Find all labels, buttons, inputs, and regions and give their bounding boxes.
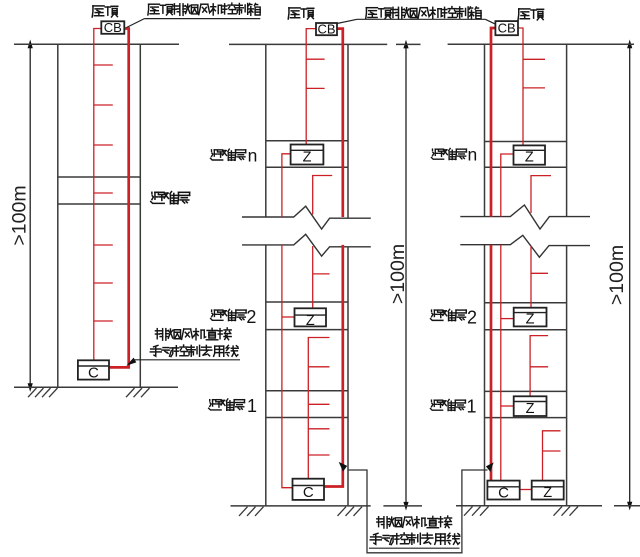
svg-text:2: 2: [467, 308, 477, 328]
svg-text:C: C: [303, 484, 314, 501]
svg-text:>100m: >100m: [387, 244, 409, 304]
svg-text:n: n: [248, 145, 258, 165]
svg-text:1: 1: [247, 396, 257, 416]
svg-text:1: 1: [467, 397, 477, 417]
svg-text:Z: Z: [306, 313, 315, 329]
svg-text:>100m: >100m: [9, 185, 31, 245]
svg-text:Z: Z: [543, 485, 552, 501]
svg-text:Z: Z: [525, 150, 534, 166]
svg-text:C: C: [498, 485, 509, 502]
svg-text:>100m: >100m: [606, 245, 628, 305]
svg-text:Z: Z: [526, 401, 535, 417]
svg-text:2: 2: [246, 307, 256, 327]
svg-text:C: C: [88, 364, 99, 381]
svg-text:Z: Z: [303, 149, 312, 165]
svg-text:CB: CB: [498, 21, 516, 36]
svg-text:CB: CB: [317, 22, 335, 37]
svg-text:n: n: [468, 145, 478, 165]
svg-text:Z: Z: [526, 312, 535, 328]
svg-text:CB: CB: [104, 20, 122, 35]
